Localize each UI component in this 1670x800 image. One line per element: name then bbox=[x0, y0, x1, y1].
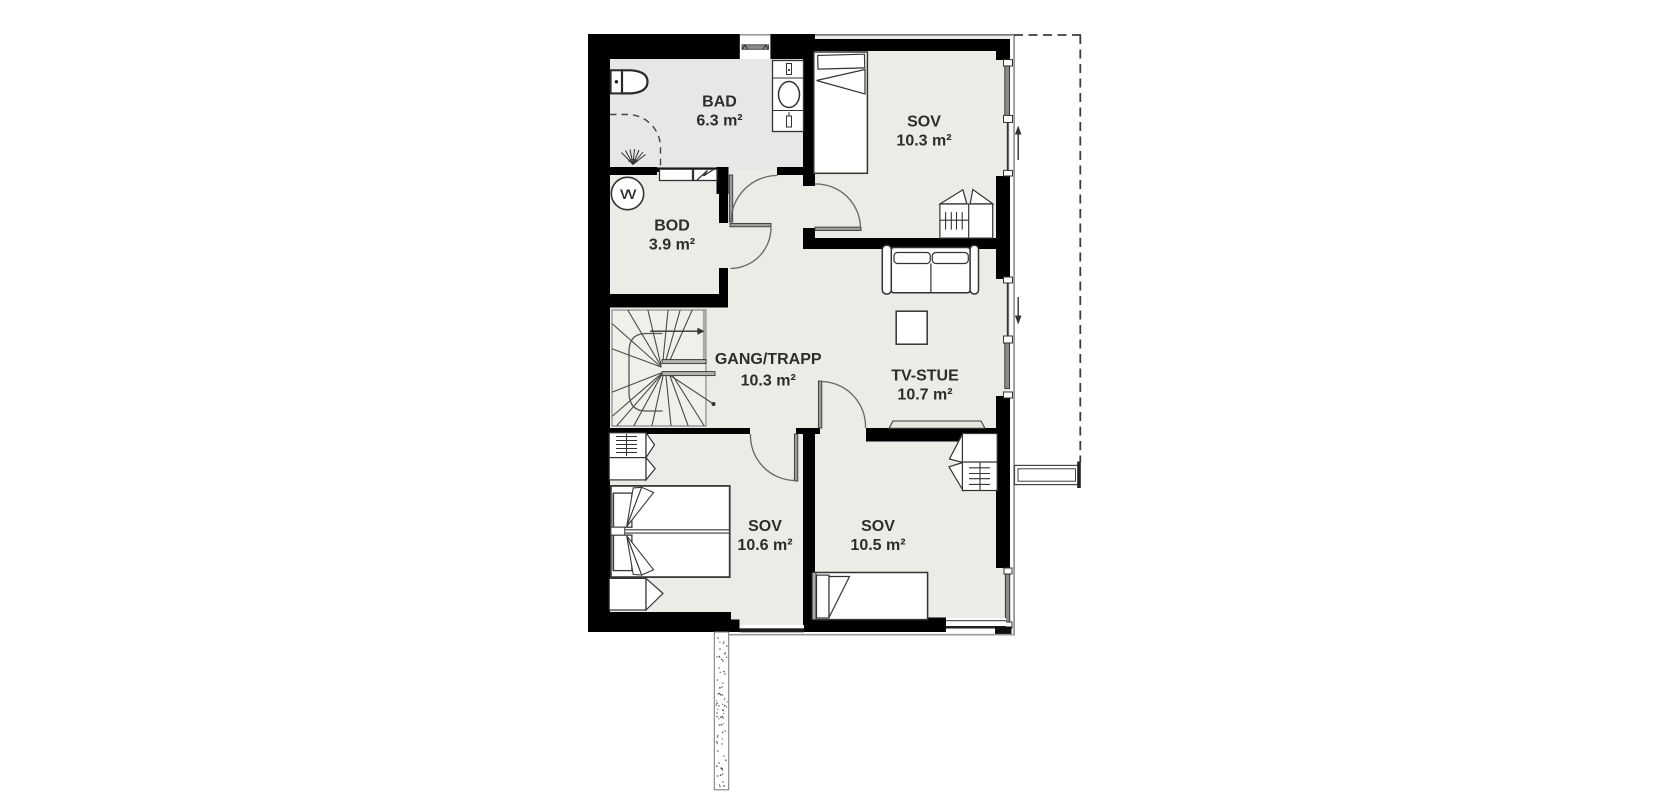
svg-text:6.3 m²: 6.3 m² bbox=[696, 113, 742, 130]
svg-text:10.7 m²: 10.7 m² bbox=[897, 387, 952, 404]
svg-text:10.3 m²: 10.3 m² bbox=[896, 133, 951, 150]
svg-text:TV-STUE: TV-STUE bbox=[891, 368, 959, 385]
svg-text:10.5 m²: 10.5 m² bbox=[850, 537, 905, 554]
svg-text:10.6 m²: 10.6 m² bbox=[737, 537, 792, 554]
svg-text:SOV: SOV bbox=[907, 114, 941, 131]
svg-text:10.3 m²: 10.3 m² bbox=[741, 373, 796, 390]
svg-text:SOV: SOV bbox=[861, 518, 895, 535]
svg-text:BAD: BAD bbox=[702, 94, 737, 111]
svg-text:3.9 m²: 3.9 m² bbox=[649, 237, 695, 254]
svg-text:BOD: BOD bbox=[654, 218, 690, 235]
svg-text:GANG/TRAPP: GANG/TRAPP bbox=[715, 351, 822, 368]
svg-text:VV: VV bbox=[620, 187, 637, 202]
svg-text:SOV: SOV bbox=[748, 518, 782, 535]
